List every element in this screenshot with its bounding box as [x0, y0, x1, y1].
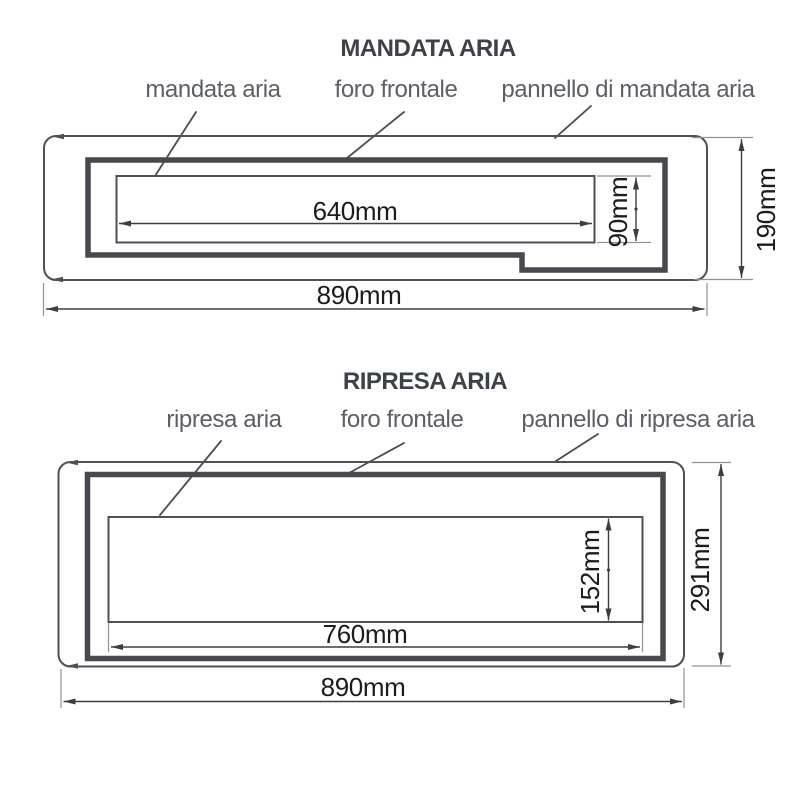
dim-text-hole-height-bottom: 152mm [575, 530, 605, 615]
callout-label-pannello-ripresa: pannello di ripresa aria [521, 406, 755, 433]
leader-line-pannello-mandata [555, 106, 591, 138]
corner-tick-bottom-left-bottom [66, 663, 78, 669]
callout-label-mandata-aria: mandata aria [145, 76, 281, 103]
diagram-mandata-aria: MANDATA ARIA mandata aria foro frontale … [44, 35, 782, 316]
dim-text-panel-height-bottom: 291mm [685, 528, 715, 613]
corner-tick-bottom-left-top [51, 277, 63, 283]
dim-text-hole-width-top: 640mm [313, 196, 398, 226]
dim-text-panel-width-top: 890mm [317, 280, 402, 310]
leader-line-ripresa-aria [160, 441, 221, 515]
corner-tick-top-left-top [52, 134, 64, 140]
front-hole-outline-bottom [109, 517, 643, 622]
leader-line-pannello-ripresa [556, 434, 598, 461]
leader-line-foro-frontale-bottom [349, 443, 404, 473]
dim-text-hole-width-bottom: 760mm [323, 619, 408, 649]
leader-line-mandata-aria [155, 112, 196, 176]
dim-text-hole-height-top: 90mm [603, 177, 633, 248]
dim-text-panel-height-top: 190mm [751, 168, 781, 253]
dim-midpoint-dot-top [634, 207, 637, 210]
callout-label-foro-frontale-bottom: foro frontale [341, 406, 464, 433]
callout-label-foro-frontale-top: foro frontale [335, 76, 458, 103]
diagram-ripresa-aria: RIPRESA ARIA ripresa aria foro frontale … [59, 368, 756, 708]
callout-label-ripresa-aria: ripresa aria [166, 406, 282, 433]
technical-drawing-page: MANDATA ARIA mandata aria foro frontale … [0, 0, 800, 800]
dim-text-panel-width-bottom: 890mm [321, 672, 406, 702]
dim-midpoint-dot-bottom [607, 568, 610, 571]
diagram-title-ripresa: RIPRESA ARIA [343, 368, 507, 395]
drawing-canvas: MANDATA ARIA mandata aria foro frontale … [0, 0, 800, 800]
callout-label-pannello-mandata: pannello di mandata aria [501, 76, 755, 103]
diagram-title-mandata: MANDATA ARIA [340, 35, 515, 62]
corner-tick-top-left-bottom [66, 460, 78, 466]
